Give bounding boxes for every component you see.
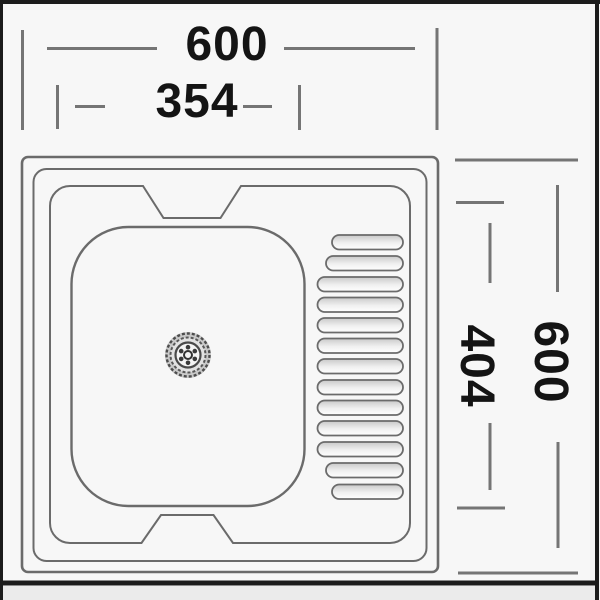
drainboard-rib (326, 463, 403, 478)
drawing-linework (0, 0, 600, 600)
dim-label-bowl-height: 404 (452, 324, 500, 407)
drainboard-rib (318, 298, 404, 313)
drainboard-rib (318, 442, 404, 457)
drainboard-rib (318, 421, 404, 436)
drainboard-ribs (318, 235, 404, 499)
drainboard-rib (332, 235, 403, 250)
drainboard-rib (318, 380, 404, 395)
drainboard-rib (326, 256, 403, 271)
dim-label-bowl-width: 354 (155, 78, 238, 126)
drainboard-rib (318, 277, 404, 292)
drainboard-rib (318, 359, 404, 374)
drainboard-rib (318, 339, 404, 354)
dim-label-overall-width: 600 (185, 21, 268, 69)
drainboard-rib (318, 318, 404, 333)
drain-strainer (165, 332, 211, 378)
drainboard-rib (332, 485, 403, 500)
dim-label-overall-height: 600 (526, 320, 574, 403)
drainboard-rib (318, 401, 404, 416)
dimension-lines (23, 28, 579, 573)
frame-outside-strip (3, 586, 596, 600)
sink-technical-drawing: 600 354 600 404 (0, 0, 600, 600)
